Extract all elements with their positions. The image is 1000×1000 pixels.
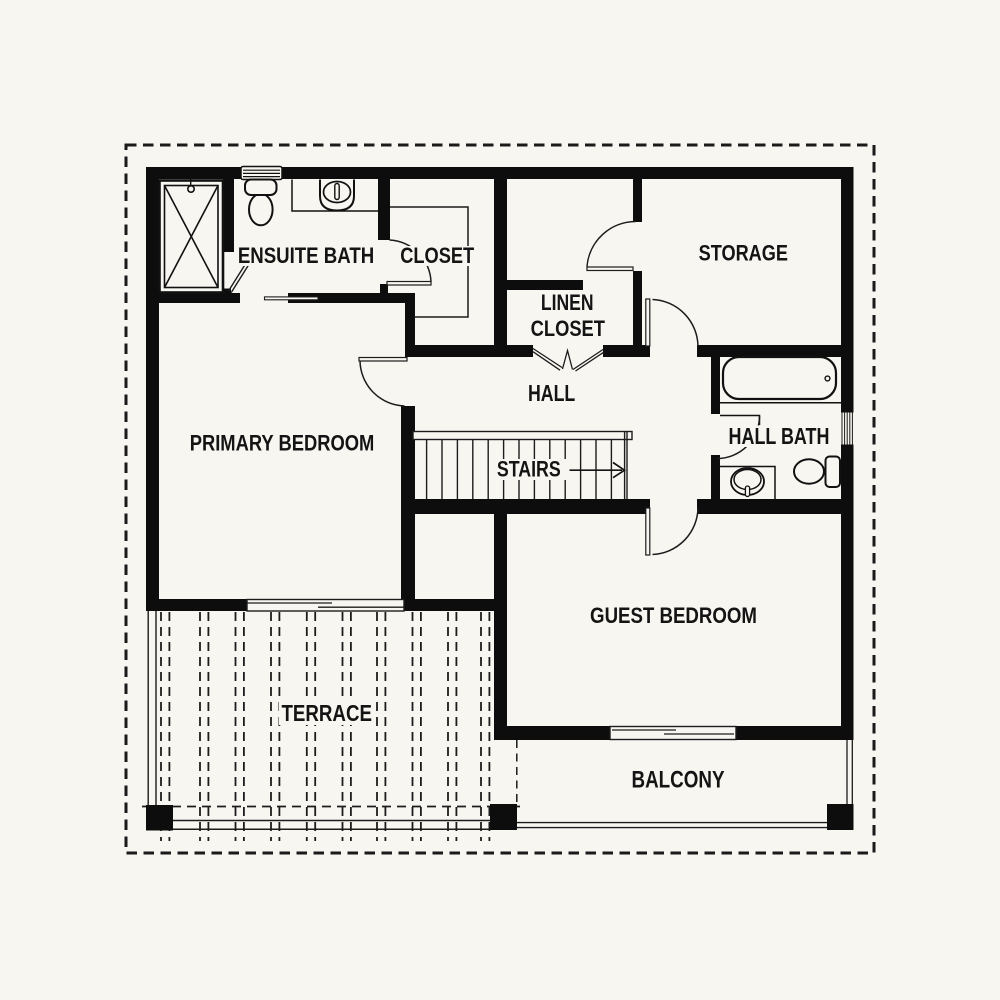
svg-text:LINEN: LINEN [541, 291, 594, 315]
svg-text:PRIMARY BEDROOM: PRIMARY BEDROOM [190, 432, 375, 456]
svg-text:CLOSET: CLOSET [400, 245, 475, 269]
svg-text:HALL BATH: HALL BATH [729, 424, 830, 450]
svg-text:ENSUITE BATH: ENSUITE BATH [238, 245, 374, 269]
svg-text:TERRACE: TERRACE [281, 700, 371, 727]
svg-text:CLOSET: CLOSET [531, 318, 606, 342]
svg-text:HALL: HALL [528, 380, 576, 406]
svg-text:BALCONY: BALCONY [632, 765, 726, 793]
svg-text:GUEST BEDROOM: GUEST BEDROOM [590, 603, 757, 628]
svg-text:STORAGE: STORAGE [699, 242, 788, 266]
svg-text:STAIRS: STAIRS [497, 458, 561, 482]
